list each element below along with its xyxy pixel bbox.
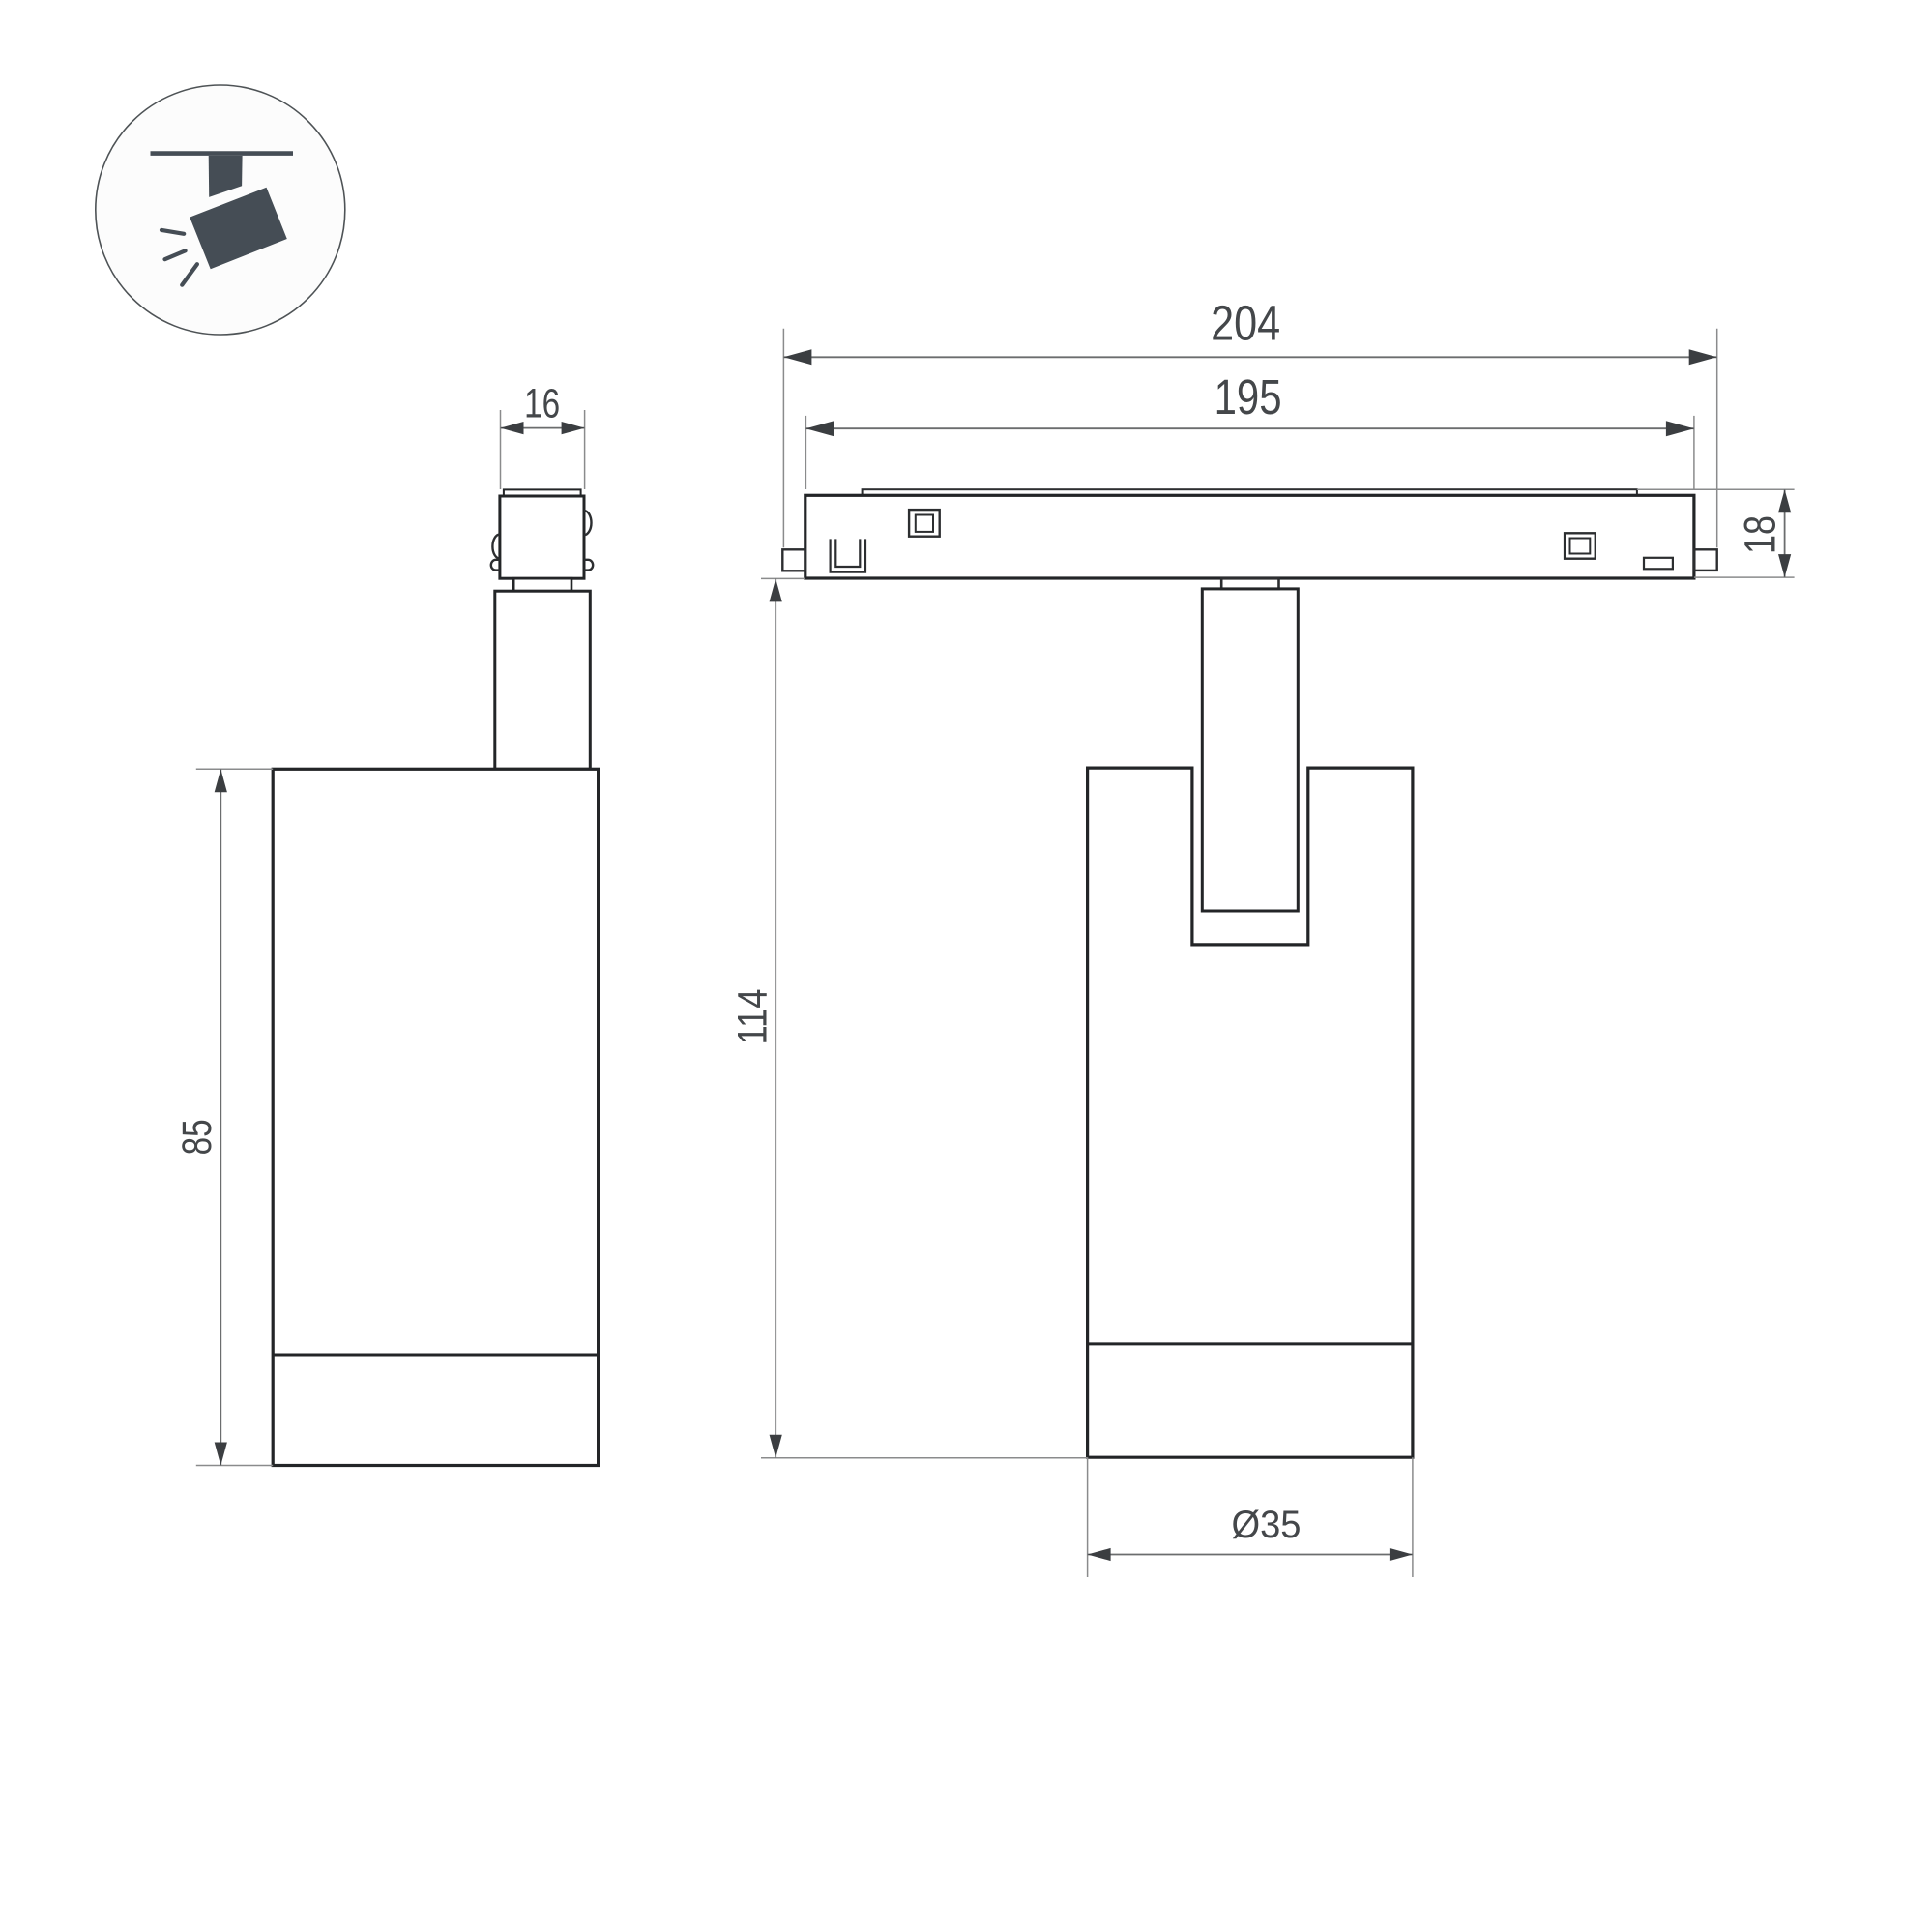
- svg-text:18: 18: [1736, 515, 1785, 554]
- svg-text:Ø35: Ø35: [1232, 1504, 1302, 1546]
- svg-text:195: 195: [1215, 369, 1282, 424]
- svg-text:204: 204: [1211, 296, 1280, 351]
- svg-text:114: 114: [729, 989, 776, 1045]
- svg-text:16: 16: [524, 381, 560, 427]
- svg-text:85: 85: [174, 1119, 220, 1155]
